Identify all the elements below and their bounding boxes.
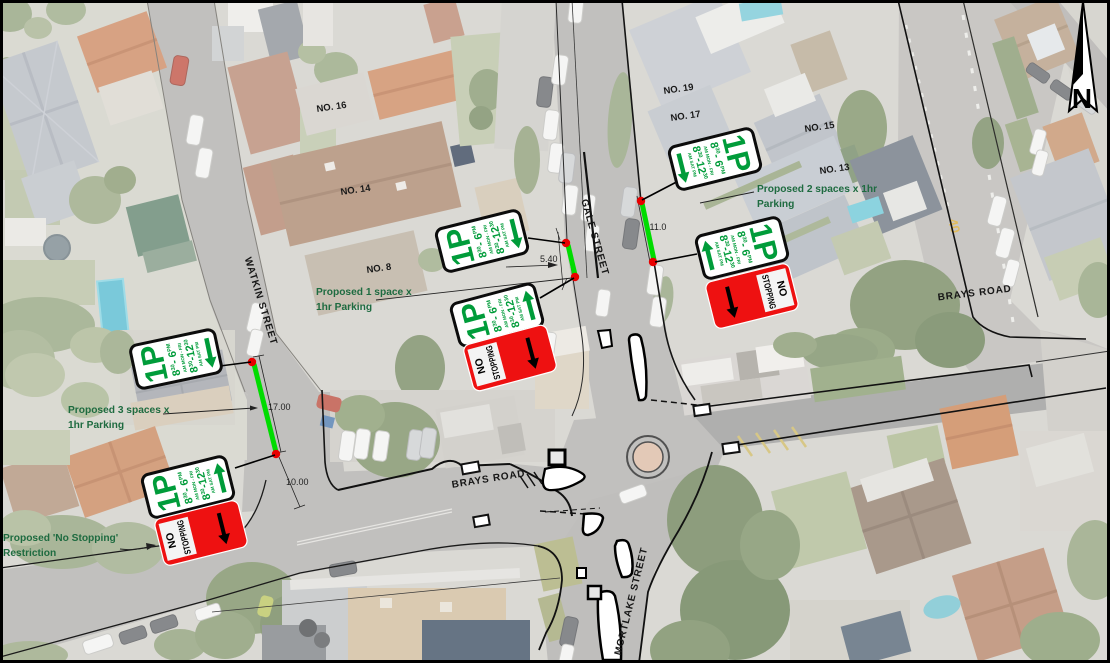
svg-text:1hr Parking: 1hr Parking [68, 420, 124, 431]
svg-text:17.00: 17.00 [268, 402, 291, 412]
svg-text:Restriction: Restriction [3, 548, 56, 559]
svg-text:Parking: Parking [757, 199, 794, 210]
svg-text:Proposed 1 space x: Proposed 1 space x [316, 287, 412, 298]
svg-text:Proposed 3 spaces x: Proposed 3 spaces x [68, 405, 170, 416]
svg-text:11.0: 11.0 [650, 222, 667, 232]
svg-text:N: N [1072, 83, 1092, 114]
svg-text:Proposed 'No Stopping': Proposed 'No Stopping' [3, 533, 118, 544]
svg-text:Proposed 2 spaces x 1hr: Proposed 2 spaces x 1hr [757, 184, 877, 195]
svg-text:10.00: 10.00 [286, 477, 309, 487]
svg-text:1hr Parking: 1hr Parking [316, 302, 372, 313]
svg-text:5.40: 5.40 [540, 254, 558, 264]
